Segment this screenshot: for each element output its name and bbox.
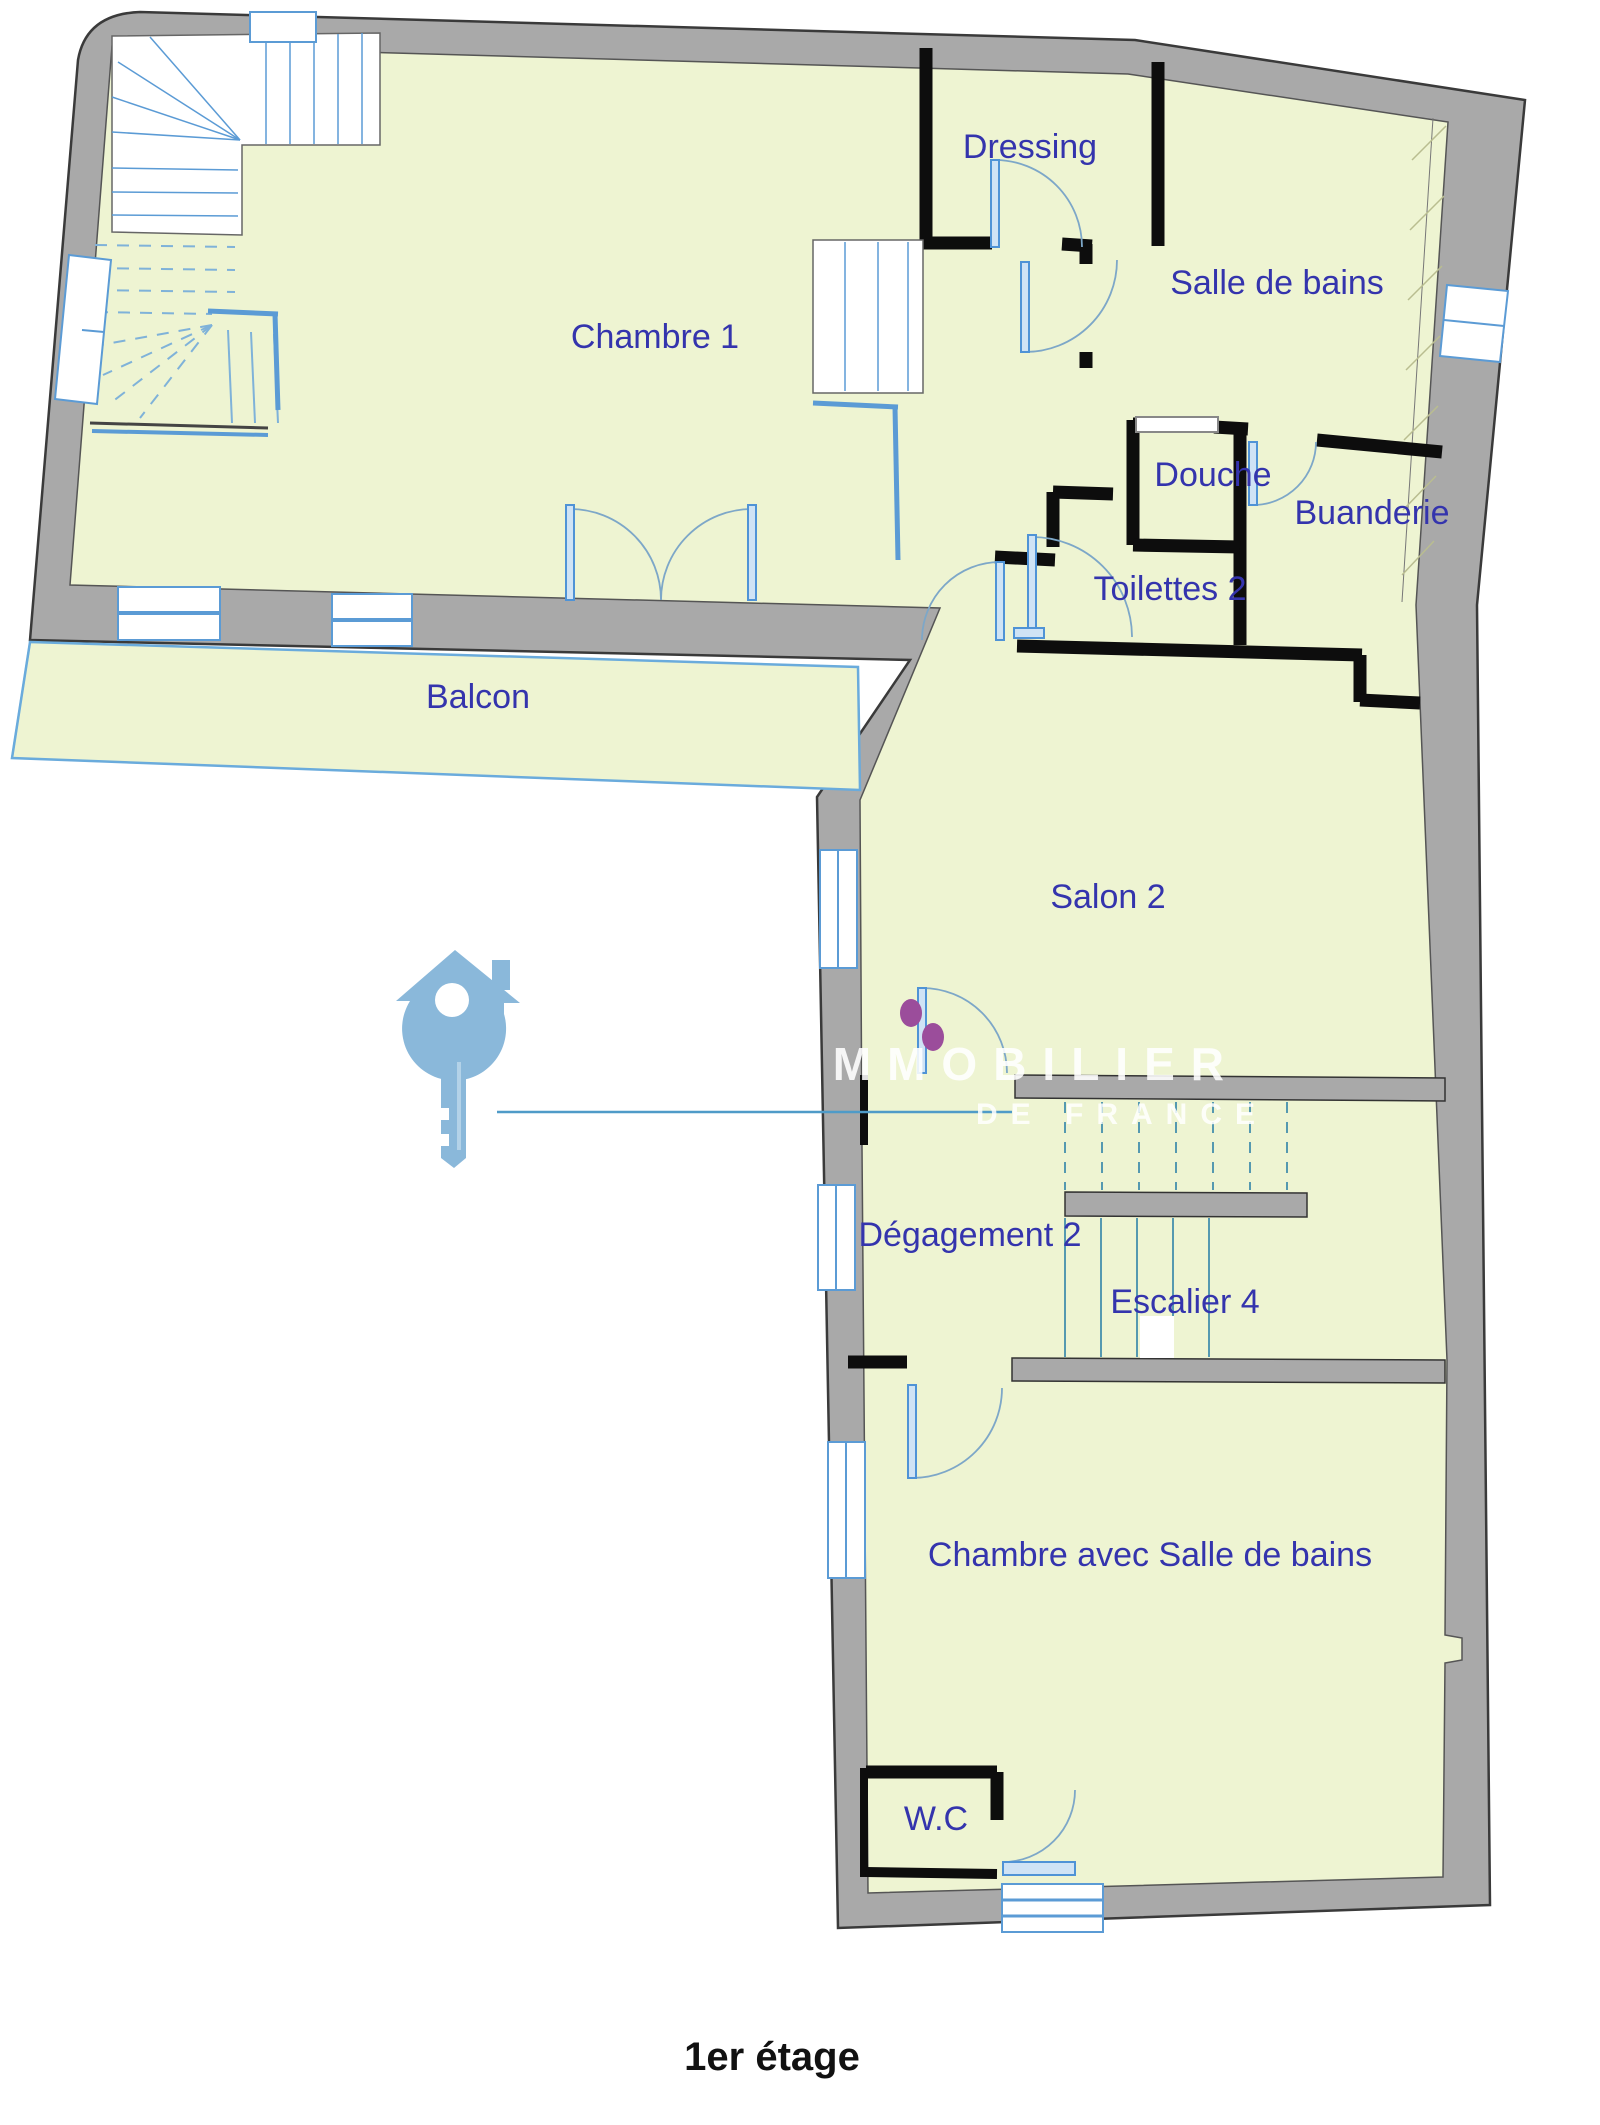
room-label-chambre-1: Chambre 1 (571, 318, 739, 356)
room-label-escalier-4: Escalier 4 (1110, 1283, 1259, 1321)
watermark-brand: IMMOBILIER (804, 1038, 1240, 1090)
room-label-toilettes-2: Toilettes 2 (1093, 570, 1246, 608)
window-south-wall (1002, 1884, 1103, 1932)
window-top-wall (250, 12, 316, 42)
sliding-door-douche (1136, 417, 1218, 432)
wall-degagement-chambre (1012, 1358, 1445, 1383)
floor-plan-page: Chambre 1 Dressing Salle de bains Douche… (0, 0, 1600, 2125)
room-label-balcon: Balcon (426, 678, 530, 716)
room-label-salon-2: Salon 2 (1050, 878, 1165, 916)
door-panel (748, 505, 756, 600)
room-label-wc: W.C (904, 1800, 968, 1838)
door-panel (908, 1385, 916, 1478)
balcony-deck (12, 642, 860, 790)
room-label-douche: Douche (1154, 456, 1271, 494)
floor-title: 1er étage (684, 2035, 860, 2079)
watermark-brand-sub: DE FRANCE (976, 1098, 1268, 1131)
room-label-dressing: Dressing (963, 128, 1097, 166)
floor-plan-drawing: Chambre 1 Dressing Salle de bains Douche… (0, 0, 1600, 2125)
door-panel (1028, 535, 1036, 637)
door-panel (566, 505, 574, 600)
room-label-chambre-sdb: Chambre avec Salle de bains (928, 1536, 1372, 1574)
threshold-wc (1003, 1862, 1075, 1875)
room-label-buanderie: Buanderie (1294, 494, 1449, 532)
stair-landing-rail (1065, 1192, 1307, 1217)
door-panel (996, 562, 1004, 640)
door-panel (1021, 262, 1029, 352)
room-label-degagement-2: Dégagement 2 (858, 1216, 1081, 1254)
door-panel (991, 160, 999, 247)
house-key-icon (396, 950, 520, 1168)
floor-area (70, 45, 1462, 1893)
threshold-toilettes (1014, 628, 1044, 638)
room-label-salle-de-bains: Salle de bains (1170, 264, 1384, 302)
